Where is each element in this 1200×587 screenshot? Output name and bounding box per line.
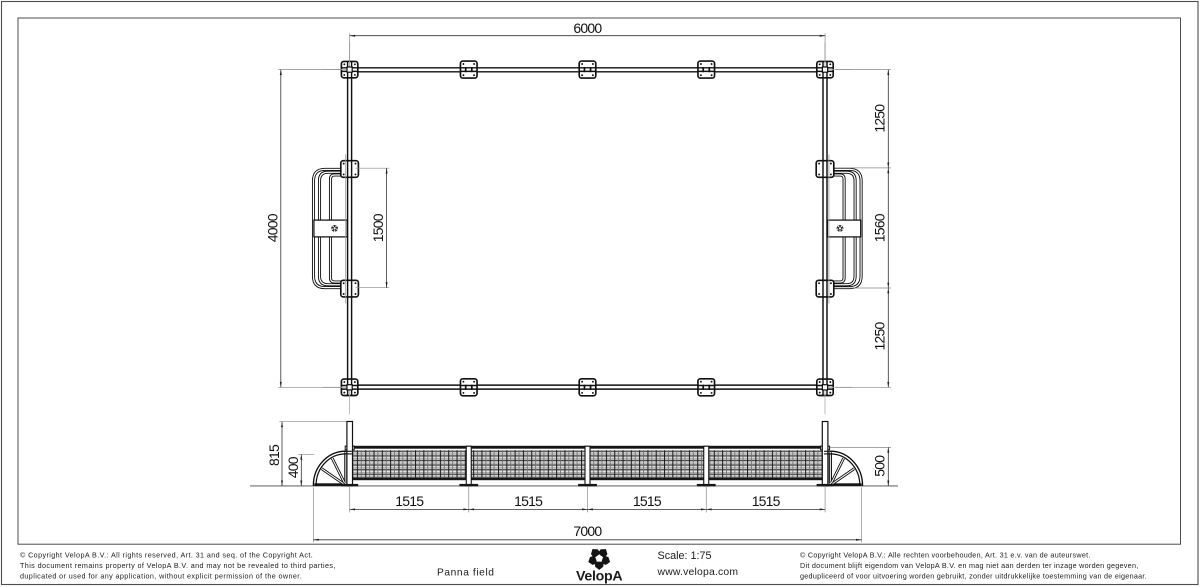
- svg-text:www.velopa.com: www.velopa.com: [657, 567, 739, 578]
- svg-text:7000: 7000: [573, 523, 602, 539]
- svg-text:gedupliceerd of voor uitvoerin: gedupliceerd of voor uitvoering worden g…: [800, 571, 1147, 580]
- svg-text:6000: 6000: [573, 20, 602, 36]
- svg-text:1515: 1515: [633, 493, 662, 509]
- svg-text:1250: 1250: [872, 104, 888, 133]
- svg-text:VelopA: VelopA: [576, 569, 622, 585]
- svg-text:1500: 1500: [370, 213, 386, 242]
- svg-text:duplicated or used for any app: duplicated or used for any application, …: [20, 571, 302, 580]
- svg-text:This document remains property: This document remains property of VelopA…: [20, 561, 336, 570]
- svg-text:© Copyright VelopA B.V.: Alle: © Copyright VelopA B.V.: Alle rechten vo…: [800, 551, 1091, 560]
- svg-text:400: 400: [285, 456, 301, 478]
- svg-text:1250: 1250: [872, 322, 888, 351]
- svg-text:4000: 4000: [264, 213, 280, 242]
- svg-text:1515: 1515: [395, 493, 424, 509]
- svg-text:1515: 1515: [514, 493, 543, 509]
- svg-text:Dit document blijft eigendom v: Dit document blijft eigendom van VelopA …: [800, 561, 1139, 570]
- svg-text:815: 815: [266, 444, 282, 466]
- svg-text:1515: 1515: [752, 493, 781, 509]
- svg-text:Scale: 1:75: Scale: 1:75: [658, 550, 712, 562]
- svg-text:© Copyright VelopA B.V.: All r: © Copyright VelopA B.V.: All rights rese…: [20, 551, 313, 560]
- svg-text:Panna field: Panna field: [437, 568, 495, 579]
- svg-text:500: 500: [872, 455, 888, 477]
- svg-text:1560: 1560: [872, 213, 888, 242]
